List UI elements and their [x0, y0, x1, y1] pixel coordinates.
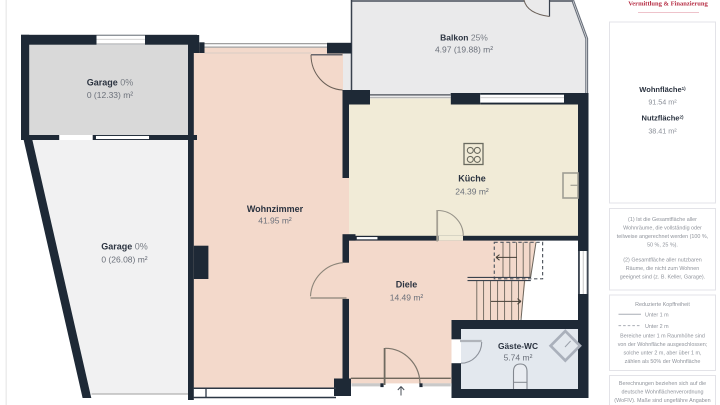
svg-text:Garage 0%: Garage 0% — [87, 78, 134, 88]
svg-text:zählen als 50% der Wohnfläche: zählen als 50% der Wohnfläche — [625, 359, 701, 365]
svg-text:teilweise angerechnet werden (: teilweise angerechnet werden (100 %, — [617, 234, 709, 240]
svg-text:Bereiche unter 1 m Raumhöhe si: Bereiche unter 1 m Raumhöhe sind — [620, 334, 705, 340]
svg-text:91.54 m²: 91.54 m² — [648, 98, 677, 107]
svg-text:deutsche Wohnflächenverordnung: deutsche Wohnflächenverordnung — [621, 390, 703, 396]
svg-text:geeignet sind (z. B. Keller, G: geeignet sind (z. B. Keller, Garage). — [620, 275, 705, 281]
svg-text:Unter 2 m: Unter 2 m — [645, 324, 669, 330]
svg-text:(2) Gesamtfläche aller nutzbar: (2) Gesamtfläche aller nutzbaren — [623, 258, 702, 264]
svg-text:Unter 1 m: Unter 1 m — [645, 313, 669, 319]
svg-text:Vermittlung & Finanzierung: Vermittlung & Finanzierung — [628, 1, 708, 8]
svg-text:14.49 m²: 14.49 m² — [390, 293, 424, 303]
svg-text:Garage 0%: Garage 0% — [101, 242, 148, 252]
svg-text:0 (12.33) m²: 0 (12.33) m² — [87, 90, 133, 100]
svg-text:Wohnräume, die vollständig ode: Wohnräume, die vollständig oder — [623, 226, 702, 232]
svg-text:(1) Ist die Gesamtfläche aller: (1) Ist die Gesamtfläche aller — [628, 217, 697, 223]
svg-text:Nutzfläche2): Nutzfläche2) — [642, 114, 684, 123]
svg-text:50 %, 25 %).: 50 %, 25 %). — [647, 243, 678, 249]
svg-text:Räume, die nicht zum Wohnen: Räume, die nicht zum Wohnen — [626, 266, 700, 272]
svg-text:38.41 m²: 38.41 m² — [648, 127, 677, 136]
svg-text:solche unter 2 m, aber über 1: solche unter 2 m, aber über 1 m, — [624, 351, 702, 357]
svg-text:24.39 m²: 24.39 m² — [455, 187, 489, 197]
svg-text:Wohnfläche1): Wohnfläche1) — [639, 85, 686, 94]
svg-text:Diele: Diele — [396, 280, 418, 290]
svg-text:(WoFlV). Maße sind ungefähre A: (WoFlV). Maße sind ungefähre Angaben — [614, 398, 710, 404]
svg-text:von der Wohnfläche ausgeschlos: von der Wohnfläche ausgeschlossen; — [618, 342, 708, 348]
svg-text:0 (26.08) m²: 0 (26.08) m² — [101, 255, 147, 265]
svg-text:Küche: Küche — [458, 174, 486, 184]
svg-text:Gäste-WC: Gäste-WC — [498, 341, 538, 351]
svg-text:41.95 m²: 41.95 m² — [258, 216, 292, 226]
svg-text:Balkon 25%: Balkon 25% — [440, 33, 488, 43]
svg-text:Wohnzimmer: Wohnzimmer — [247, 204, 304, 214]
svg-text:4.97 (19.88) m²: 4.97 (19.88) m² — [435, 45, 493, 55]
svg-text:Berechnungen beziehen sich auf: Berechnungen beziehen sich auf die — [619, 381, 706, 387]
svg-text:5.74 m²: 5.74 m² — [504, 353, 533, 363]
svg-text:Reduzierte Kopffreiheit: Reduzierte Kopffreiheit — [635, 302, 690, 308]
